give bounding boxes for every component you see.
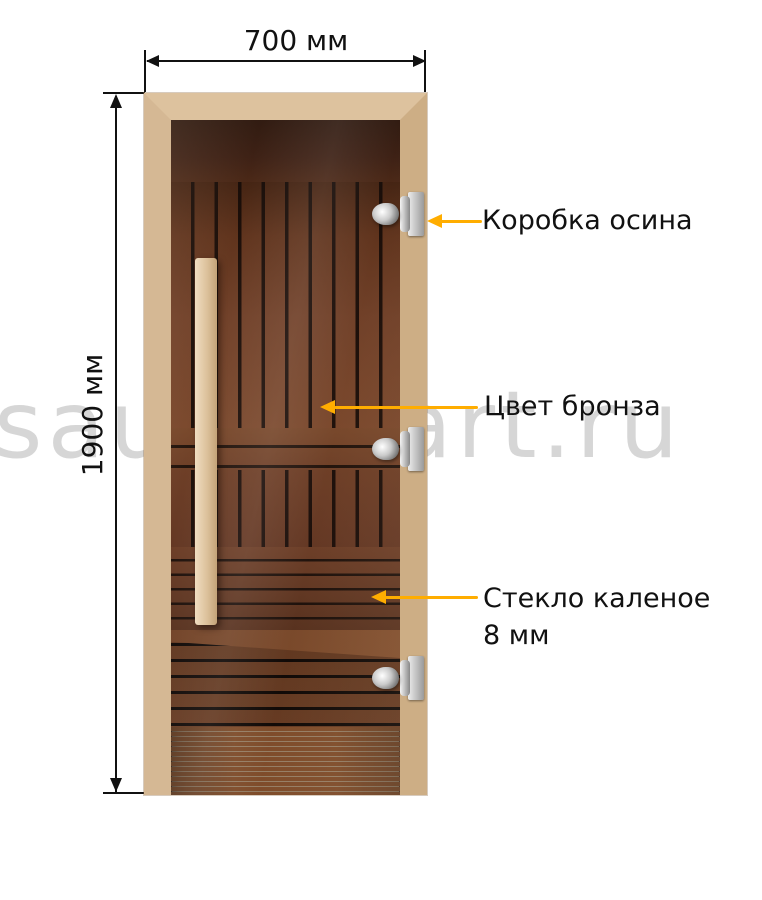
hinge-plate: [408, 427, 424, 471]
hinge-barrel: [400, 660, 410, 696]
hinge-bottom: [372, 654, 424, 702]
width-dimension-label: 700 мм: [156, 24, 436, 58]
height-dimension-tick-bottom: [103, 792, 145, 794]
door-frame: [144, 93, 427, 795]
hinge-middle: [372, 425, 424, 473]
callout-arrow-line: [440, 220, 482, 223]
width-dimension-line: [147, 60, 425, 62]
door-glass: [171, 120, 400, 795]
callout-glass-color-label: Цвет бронза: [484, 390, 661, 424]
hinge-top: [372, 190, 424, 238]
sauna-ceiling-shadow: [171, 120, 400, 182]
hinge-knob: [372, 667, 399, 689]
height-dimension-tick-top: [103, 92, 145, 94]
height-dimension-line: [115, 96, 117, 792]
arrowhead-down-icon: [110, 778, 122, 792]
hinge-plate: [408, 656, 424, 700]
sauna-floor: [171, 727, 400, 795]
callout-line-2: 8 мм: [483, 617, 710, 654]
callout-glass-thickness-label: Стекло каленое 8 мм: [483, 580, 710, 654]
width-dimension-tick-right: [424, 50, 426, 92]
callout-arrow-line: [385, 596, 478, 599]
callout-arrow-line: [334, 406, 478, 409]
door-handle: [195, 258, 217, 625]
callout-arrow-icon: [320, 400, 335, 414]
height-dimension-label: 1900 мм: [76, 335, 110, 495]
hinge-knob: [372, 438, 399, 460]
arrowhead-left-icon: [146, 55, 159, 67]
hinge-barrel: [400, 196, 410, 232]
hinge-knob: [372, 203, 399, 225]
callout-arrow-icon: [371, 590, 386, 604]
callout-frame-material-label: Коробка осина: [482, 204, 693, 238]
hinge-barrel: [400, 431, 410, 467]
callout-arrow-icon: [427, 214, 442, 228]
width-dimension-tick-left: [144, 50, 146, 92]
arrowhead-up-icon: [110, 94, 122, 108]
hinge-plate: [408, 192, 424, 236]
product-diagram: { "diagram": { "width_dimension": "700 м…: [0, 0, 762, 900]
callout-line-1: Стекло каленое: [483, 580, 710, 617]
